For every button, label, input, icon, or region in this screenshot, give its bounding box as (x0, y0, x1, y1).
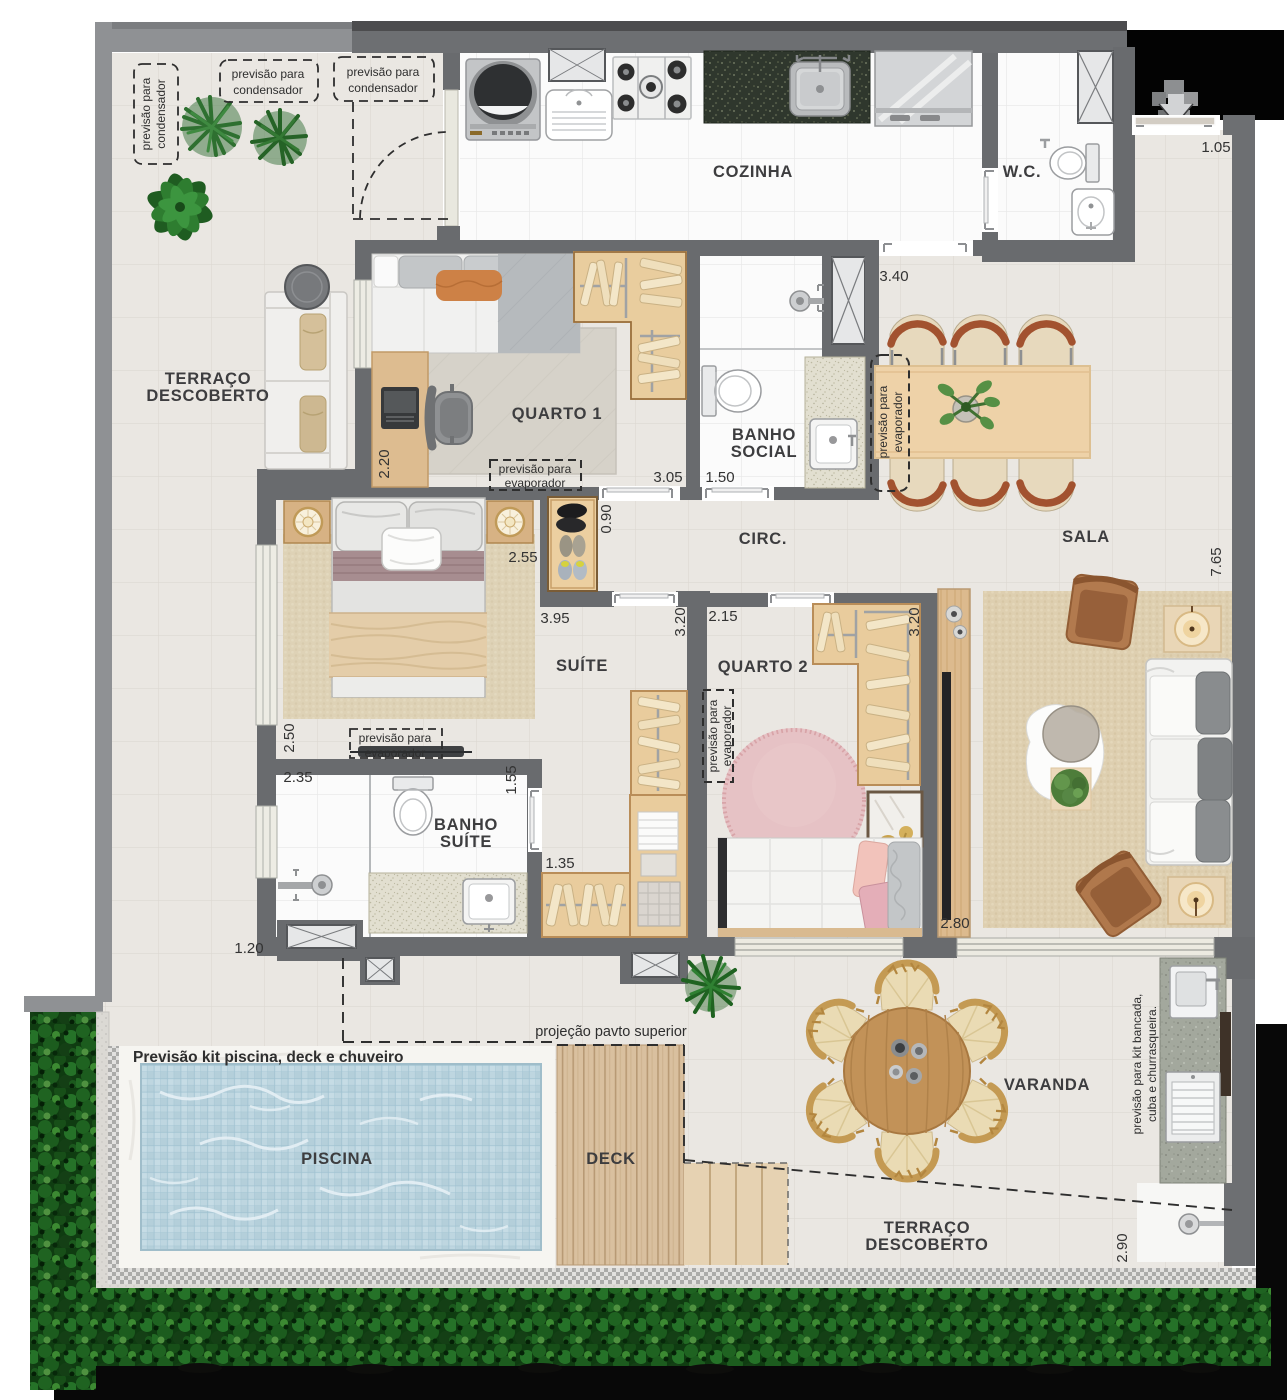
svg-text:evaporador: evaporador (505, 476, 566, 490)
svg-text:W.C.: W.C. (1003, 163, 1042, 181)
svg-text:QUARTO 2: QUARTO 2 (718, 658, 809, 676)
svg-text:previsão para: previsão para (876, 385, 890, 458)
svg-text:3.95: 3.95 (540, 610, 569, 627)
svg-text:DESCOBERTO: DESCOBERTO (865, 1236, 988, 1254)
svg-text:1.05: 1.05 (1201, 139, 1230, 156)
svg-text:1.20: 1.20 (234, 940, 263, 957)
svg-text:0.90: 0.90 (598, 504, 615, 533)
svg-text:2.15: 2.15 (708, 608, 737, 625)
svg-text:previsão para: previsão para (139, 77, 153, 150)
svg-text:condensador: condensador (233, 83, 302, 97)
svg-text:DECK: DECK (586, 1150, 636, 1168)
svg-text:QUARTO 1: QUARTO 1 (512, 405, 603, 423)
svg-text:projeção pavto superior: projeção pavto superior (535, 1024, 687, 1040)
svg-text:previsão para: previsão para (359, 731, 432, 745)
svg-text:condensador: condensador (154, 79, 168, 148)
svg-text:TERRAÇO: TERRAÇO (884, 1219, 970, 1237)
svg-text:3.20: 3.20 (906, 607, 923, 636)
svg-text:7.65: 7.65 (1208, 547, 1225, 576)
svg-text:1.55: 1.55 (503, 765, 520, 794)
svg-text:previsão para: previsão para (232, 67, 305, 81)
svg-text:evaporador: evaporador (891, 392, 905, 453)
svg-text:1.50: 1.50 (705, 469, 734, 486)
svg-text:3.40: 3.40 (879, 268, 908, 285)
svg-text:previsão para: previsão para (499, 462, 572, 476)
svg-text:CIRC.: CIRC. (739, 530, 787, 548)
svg-text:DESCOBERTO: DESCOBERTO (146, 387, 269, 405)
svg-text:3.05: 3.05 (653, 469, 682, 486)
svg-text:2.55: 2.55 (508, 549, 537, 566)
svg-text:SUÍTE: SUÍTE (440, 832, 492, 851)
svg-text:evaporador: evaporador (720, 706, 734, 767)
svg-text:previsão para kit bancada,: previsão para kit bancada, (1130, 994, 1144, 1135)
svg-text:VARANDA: VARANDA (1004, 1076, 1090, 1094)
svg-text:SALA: SALA (1062, 528, 1110, 546)
svg-text:1.35: 1.35 (545, 855, 574, 872)
svg-text:SOCIAL: SOCIAL (731, 443, 798, 461)
svg-text:PISCINA: PISCINA (301, 1150, 373, 1168)
svg-text:condensador: condensador (348, 81, 417, 95)
svg-text:3.20: 3.20 (672, 607, 689, 636)
svg-text:BANHO: BANHO (732, 426, 796, 444)
svg-text:cuba e churrasqueira.: cuba e churrasqueira. (1145, 1006, 1159, 1122)
svg-text:2.20: 2.20 (376, 449, 393, 478)
svg-text:previsão para: previsão para (347, 65, 420, 79)
svg-text:2.90: 2.90 (1114, 1233, 1131, 1262)
svg-text:Previsão kit piscina, deck e c: Previsão kit piscina, deck e chuveiro (133, 1049, 404, 1066)
svg-text:COZINHA: COZINHA (713, 163, 793, 181)
svg-text:previsão para: previsão para (706, 699, 720, 772)
svg-text:SUÍTE: SUÍTE (556, 656, 608, 675)
svg-text:evaporador: evaporador (365, 746, 426, 760)
svg-text:2.50: 2.50 (281, 723, 298, 752)
svg-text:2.35: 2.35 (283, 769, 312, 786)
svg-text:TERRAÇO: TERRAÇO (165, 370, 251, 388)
svg-text:BANHO: BANHO (434, 816, 498, 834)
svg-text:2.80: 2.80 (940, 915, 969, 932)
